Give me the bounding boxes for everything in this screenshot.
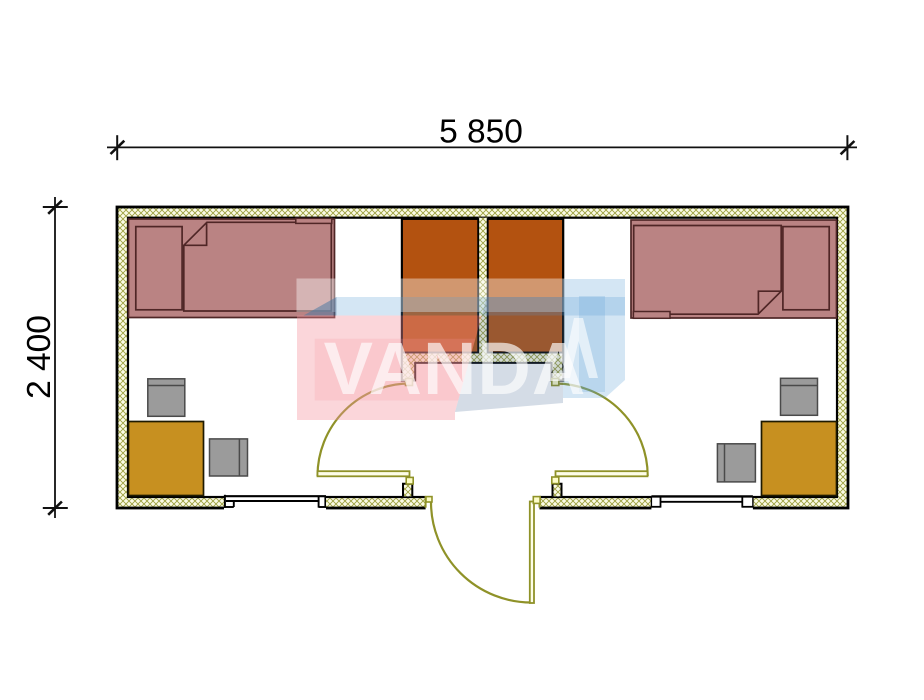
svg-text:VANDA: VANDA bbox=[324, 327, 587, 410]
svg-text:2 400: 2 400 bbox=[21, 315, 58, 399]
svg-text:5 850: 5 850 bbox=[439, 114, 523, 151]
